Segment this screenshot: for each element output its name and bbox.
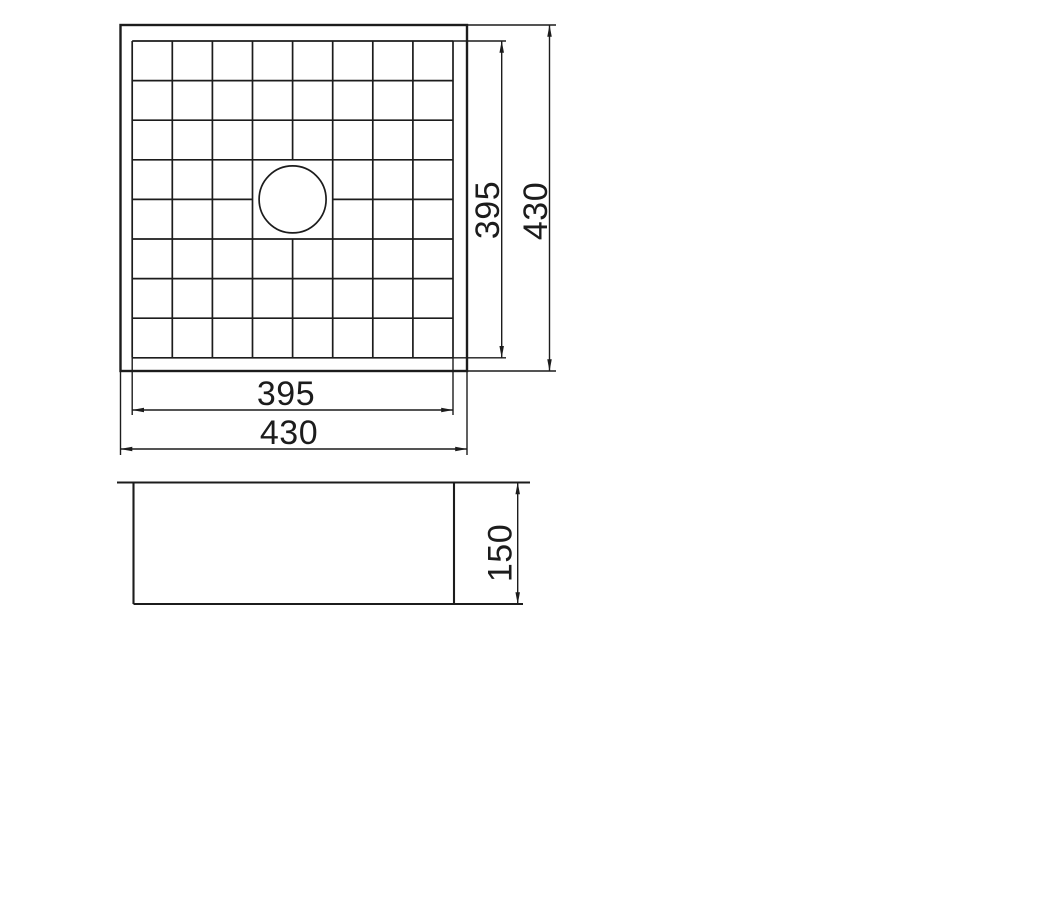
top-view bbox=[121, 25, 468, 371]
sink-grid bbox=[132, 41, 453, 358]
side-view: 150 bbox=[117, 483, 530, 605]
dim-label-depth: 150 bbox=[482, 524, 520, 582]
top-view-dimensions-bottom: 395 430 bbox=[121, 358, 468, 455]
dim-label-outer-width: 430 bbox=[260, 414, 318, 452]
technical-drawing: 395 430 395 430 150 bbox=[0, 0, 1040, 912]
dim-label-inner-width: 395 bbox=[257, 375, 315, 413]
dim-label-inner-height: 395 bbox=[469, 181, 507, 239]
top-view-dimensions-right: 395 430 bbox=[453, 25, 556, 371]
drain-hole bbox=[259, 166, 326, 233]
drawing-canvas: 395 430 395 430 150 bbox=[0, 0, 1040, 912]
dim-label-outer-height: 430 bbox=[517, 182, 555, 240]
